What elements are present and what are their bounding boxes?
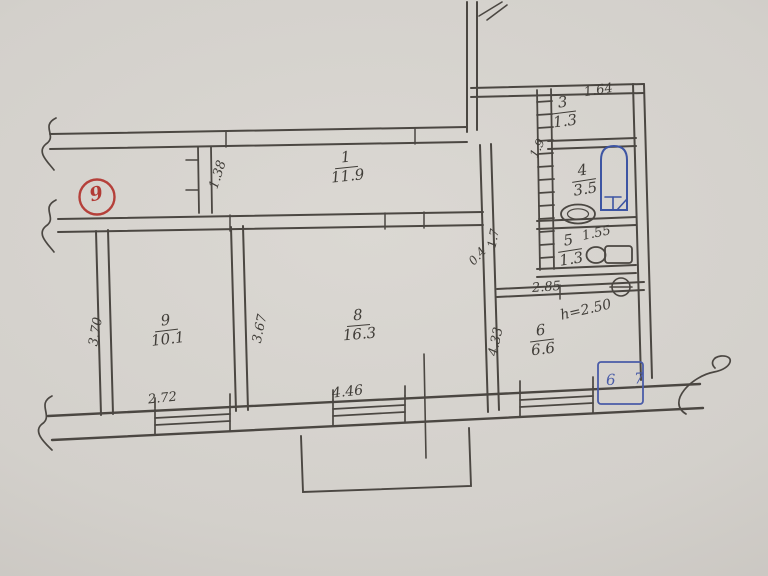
dim-room8-width: 4.46	[331, 383, 364, 401]
room-label-5: 5 1.3	[555, 231, 584, 269]
wall-top-right-vertical	[467, 2, 507, 132]
sink-icon	[561, 205, 595, 224]
room-5-area: 1.3	[558, 249, 584, 269]
room-label-1: 1 11.9	[328, 148, 365, 186]
bathtub-icon	[601, 146, 627, 210]
wall-room9-room8	[231, 226, 248, 411]
room-label-4: 4 3.5	[569, 161, 598, 199]
wall-wc-bottom	[537, 265, 636, 277]
room-4-area: 3.5	[572, 179, 598, 199]
dim-room9-width: 2.72	[147, 391, 177, 408]
room-label-6: 6 6.6	[528, 322, 556, 359]
room-1-area: 11.9	[330, 166, 365, 186]
room-label-9: 9 10.1	[148, 311, 185, 349]
dim-kitchen-width: 2.85	[532, 280, 562, 296]
room-3-area: 1.3	[552, 111, 578, 131]
scanned-floor-plan-sheet: 9 1 11.9 3 1.3 1.64 4 3.5 1.9 5 1.3 1.55…	[0, 0, 768, 576]
toilet-icon	[587, 246, 633, 263]
wall-corridor-top	[50, 127, 467, 149]
room-label-3: 3 1.3	[550, 94, 578, 131]
room-8-area: 16.3	[342, 324, 377, 344]
wall-corridor-bottom	[58, 212, 483, 232]
room-label-8: 8 16.3	[341, 307, 377, 344]
room-6-area: 6.6	[530, 339, 556, 359]
wall-right-outer	[633, 84, 652, 380]
floor-plan-drawing	[0, 0, 768, 576]
wall-mid-vertical	[480, 144, 499, 412]
vent-symbol	[610, 278, 632, 296]
window-symbol-kitchen	[520, 377, 593, 417]
stamp-text: 6 7	[606, 371, 652, 389]
dim-gap-a: 1.7	[486, 228, 502, 249]
